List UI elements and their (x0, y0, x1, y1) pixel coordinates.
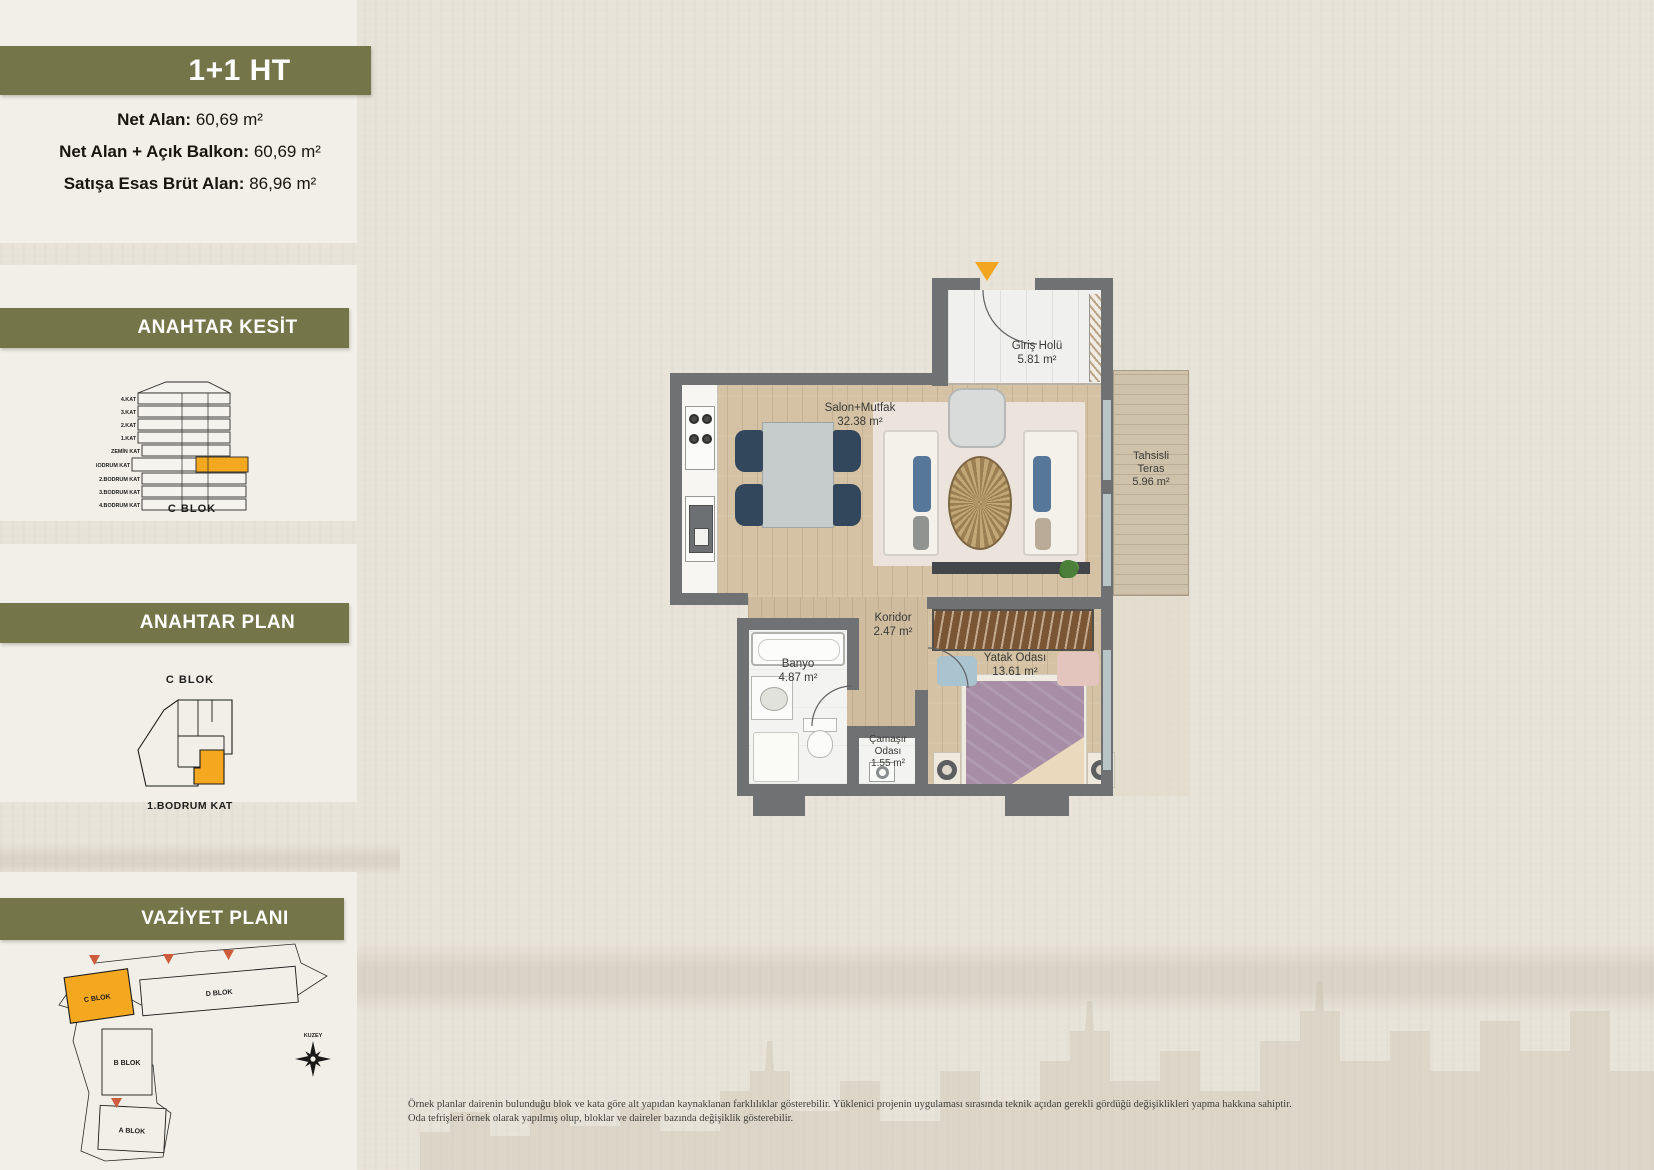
site-plan-diagram: C BLOK D BLOK B BLOK A BLOK KUZEY (45, 943, 345, 1167)
disclaimer-line-2: Oda tefrişleri örnek olarak yapılmış olu… (408, 1112, 1648, 1126)
wall (670, 373, 932, 385)
svg-text:2.KAT: 2.KAT (121, 423, 137, 429)
wall (932, 278, 948, 386)
wall (737, 618, 859, 630)
shower-area (753, 732, 799, 782)
svg-text:1.BODRUM KAT: 1.BODRUM KAT (96, 463, 131, 469)
svg-text:2.BODRUM KAT: 2.BODRUM KAT (99, 477, 141, 483)
svg-text:KUZEY: KUZEY (304, 1033, 323, 1039)
plant (1060, 560, 1078, 578)
apartment-floor-plan: Giriş Holü5.81 m² Salon+Mutfak32.38 m² T… (645, 250, 1201, 822)
wall (847, 618, 859, 690)
window-glazing (1103, 494, 1111, 586)
unit-type-title: 1+1 HT (0, 46, 371, 95)
building-section-diagram: 4.KAT 3.KAT 2.KAT 1.KAT ZEMİN KAT 1.BODR… (96, 380, 254, 512)
disclaimer-line-1: Örnek planlar dairenin bulunduğu blok ve… (408, 1098, 1648, 1112)
wall-stub (753, 796, 805, 816)
wall (737, 618, 749, 796)
burner-icon (702, 414, 712, 424)
wardrobe (932, 609, 1094, 651)
dining-chair (833, 484, 861, 526)
svg-text:ZEMİN KAT: ZEMİN KAT (111, 448, 141, 455)
net-area-line: Net Alan: 60,69 m² (0, 110, 380, 130)
bed (961, 674, 1087, 796)
dining-chair (833, 430, 861, 472)
wall (915, 784, 1113, 796)
section-title-vaziyet-plani: VAZİYET PLANI (0, 898, 344, 940)
wall (670, 373, 682, 605)
bedroom-chaise (1057, 652, 1099, 686)
brochure-page: 1+1 HT Net Alan: 60,69 m² Net Alan + Açı… (0, 0, 1654, 1170)
armchair (948, 388, 1006, 448)
room-label-salon: Salon+Mutfak32.38 m² (825, 402, 896, 429)
wall-stub (1005, 796, 1069, 816)
svg-text:B BLOK: B BLOK (114, 1060, 141, 1067)
wall (927, 597, 1101, 609)
bedside-lamp-icon (937, 760, 957, 780)
entrance-arrow-icon (975, 262, 999, 281)
room-label-bathroom: Banyo4.87 m² (779, 658, 818, 685)
room-label-terrace: Tahsisli Teras5.96 m² (1120, 450, 1182, 489)
room-label-corridor: Koridor2.47 m² (874, 612, 913, 639)
key-plan-diagram (128, 694, 250, 796)
burner-icon (689, 414, 699, 424)
dining-chair (735, 484, 763, 526)
section-title-anahtar-plan: ANAHTAR PLAN (0, 603, 349, 643)
dining-table (762, 422, 834, 528)
compass-icon: KUZEY (295, 1033, 331, 1077)
kitchen-sink-unit (685, 496, 715, 562)
net-plus-balcony-line: Net Alan + Açık Balkon: 60,69 m² (0, 142, 380, 162)
wall (932, 278, 980, 290)
room-label-laundry: Çamaşır Odası1.55 m² (857, 734, 919, 769)
net-plus-balcony-value: 60,69 m² (254, 142, 321, 161)
gross-area-label: Satışa Esas Brüt Alan: (64, 174, 245, 193)
anahtar-plan-floor-caption: 1.BODRUM KAT (110, 800, 270, 812)
svg-text:3.KAT: 3.KAT (121, 410, 137, 416)
wall (670, 593, 748, 605)
kesit-block-caption: C BLOK (112, 503, 272, 515)
city-skyline-silhouette (420, 870, 1654, 1170)
toilet (803, 718, 837, 758)
net-plus-balcony-label: Net Alan + Açık Balkon: (59, 142, 249, 161)
net-area-label: Net Alan: (117, 110, 191, 129)
net-area-value: 60,69 m² (196, 110, 263, 129)
sofa (883, 430, 939, 556)
site-block-b: B BLOK (102, 1029, 152, 1095)
disclaimer-text: Örnek planlar dairenin bulunduğu blok ve… (408, 1098, 1648, 1125)
section-title-anahtar-kesit: ANAHTAR KESİT (0, 308, 349, 348)
bedroom-chair (937, 656, 977, 686)
anahtar-plan-block-caption: C BLOK (110, 674, 270, 686)
room-label-entry-hall: Giriş Holü5.81 m² (1012, 340, 1062, 367)
svg-text:4.KAT: 4.KAT (121, 397, 137, 403)
burner-icon (702, 434, 712, 444)
svg-text:A BLOK: A BLOK (118, 1127, 145, 1135)
site-block-d: D BLOK (140, 966, 299, 1015)
window-glazing (1103, 650, 1111, 770)
paper-shadow-band-left (0, 843, 400, 875)
wall (737, 784, 927, 796)
svg-text:1.KAT: 1.KAT (121, 436, 137, 442)
burner-icon (689, 434, 699, 444)
entry-hall-floor (948, 290, 1101, 385)
svg-text:3.BODRUM KAT: 3.BODRUM KAT (99, 490, 141, 496)
gross-area-value: 86,96 m² (249, 174, 316, 193)
gross-area-line: Satışa Esas Brüt Alan: 86,96 m² (0, 174, 380, 194)
site-block-a: A BLOK (98, 1105, 166, 1152)
site-block-c: C BLOK (64, 969, 134, 1023)
highlighted-floor-marker (196, 457, 248, 472)
window-glazing (1103, 400, 1111, 480)
dining-chair (735, 430, 763, 472)
coffee-table (948, 456, 1012, 550)
room-label-bedroom: Yatak Odası13.61 m² (984, 652, 1046, 679)
stove (685, 406, 715, 470)
terrace-side-strip (1113, 596, 1189, 796)
sofa (1023, 430, 1079, 556)
